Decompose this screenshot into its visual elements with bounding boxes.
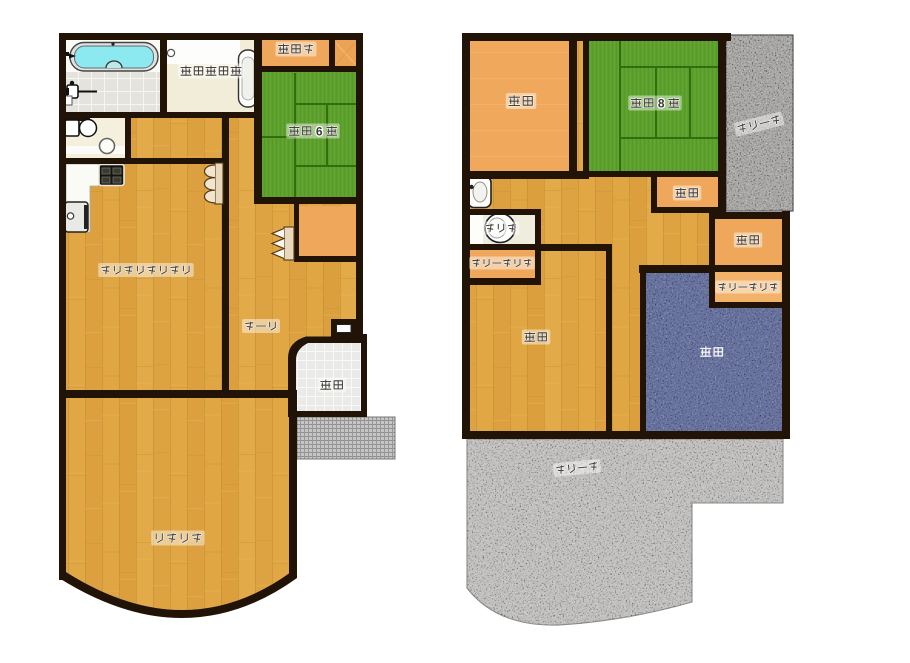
svg-text:8: 8 bbox=[658, 97, 665, 111]
svg-text:6: 6 bbox=[316, 125, 323, 139]
